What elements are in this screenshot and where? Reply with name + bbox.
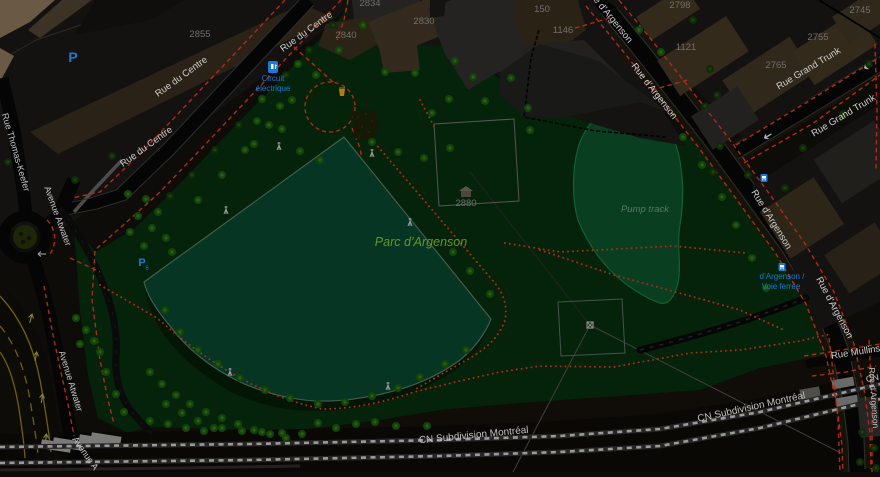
svg-text:2855: 2855 — [189, 29, 210, 40]
svg-text:2830: 2830 — [413, 16, 434, 27]
svg-text:P: P — [68, 49, 77, 65]
svg-text:2798: 2798 — [669, 0, 690, 11]
svg-text:2745: 2745 — [849, 5, 870, 16]
svg-text:Parc d’Argenson: Parc d’Argenson — [375, 235, 467, 249]
svg-text:1146: 1146 — [553, 25, 573, 36]
svg-text:d’Argenson /: d’Argenson / — [760, 272, 806, 281]
svg-text:150: 150 — [534, 4, 550, 15]
svg-text:2834: 2834 — [359, 0, 380, 9]
svg-text:2840: 2840 — [335, 30, 356, 41]
svg-text:Circuit: Circuit — [262, 74, 285, 83]
svg-text:1121: 1121 — [676, 42, 696, 53]
svg-text:2880: 2880 — [455, 198, 476, 209]
svg-text:2765: 2765 — [765, 60, 786, 71]
svg-text:Pump track: Pump track — [621, 204, 670, 215]
svg-text:électrique: électrique — [256, 84, 291, 93]
svg-text:2755: 2755 — [807, 32, 828, 43]
svg-text:Voie ferrée: Voie ferrée — [762, 282, 801, 291]
